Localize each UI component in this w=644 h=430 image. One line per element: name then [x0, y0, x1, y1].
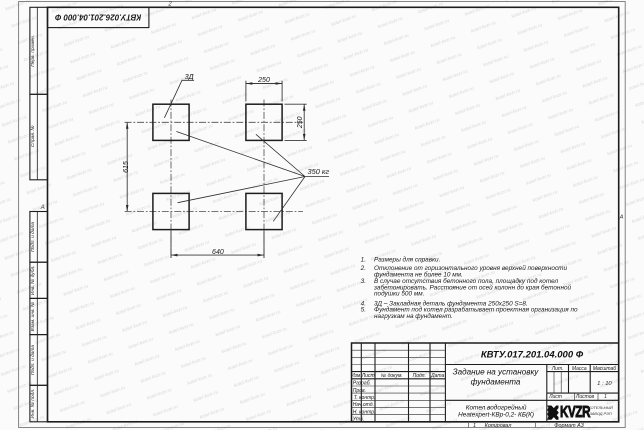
svg-text:350 кг: 350 кг	[308, 167, 330, 176]
svg-text:Т. контр.: Т. контр.	[354, 395, 376, 401]
svg-text:615: 615	[123, 161, 130, 173]
svg-text:1 : 10: 1 : 10	[597, 381, 612, 387]
svg-text:Справ. №: Справ. №	[30, 125, 36, 147]
svg-text:Изм.: Изм.	[351, 373, 362, 379]
svg-text:2.: 2.	[360, 265, 366, 272]
svg-text:Разраб.: Разраб.	[353, 381, 371, 387]
svg-text:ЗАВОД РЭП: ЗАВОД РЭП	[589, 411, 612, 416]
svg-text:3.: 3.	[361, 278, 366, 285]
svg-text:Листов: Листов	[575, 394, 595, 400]
svg-text:Размеры для справки.: Размеры для справки.	[374, 255, 440, 263]
svg-text:Инв. № дубл.: Инв. № дубл.	[30, 266, 36, 296]
svg-text:250: 250	[257, 77, 270, 84]
svg-text:Подп. и дата: Подп. и дата	[30, 345, 36, 375]
svg-text:КОТЕЛЬНЫЙ: КОТЕЛЬНЫЙ	[588, 405, 613, 410]
svg-text:2: 2	[167, 2, 172, 8]
svg-text:KVZR: KVZR	[560, 403, 591, 421]
svg-text:1: 1	[473, 423, 476, 429]
svg-text:Лист: Лист	[361, 373, 375, 379]
svg-text:Лит.: Лит.	[551, 366, 564, 372]
svg-text:Пров.: Пров.	[353, 388, 366, 394]
svg-text:Нач.отд.: Нач.отд.	[353, 402, 374, 408]
svg-text:Утв.: Утв.	[353, 416, 364, 422]
svg-text:640: 640	[212, 249, 224, 256]
svg-text:фундамента: фундамента	[471, 377, 521, 386]
svg-text:Взам. инв. №: Взам. инв. №	[30, 302, 36, 332]
svg-text:Подп. и дата: Подп. и дата	[30, 222, 36, 252]
svg-text:1.: 1.	[361, 256, 366, 263]
svg-text:КВТУ.026.201.04.000 Ф: КВТУ.026.201.04.000 Ф	[54, 13, 141, 22]
svg-text:КВТУ.017.201.04.000 Ф: КВТУ.017.201.04.000 Ф	[481, 349, 584, 360]
svg-text:Подп.: Подп.	[413, 373, 426, 379]
svg-text:Масштаб: Масштаб	[593, 366, 617, 372]
svg-text:3Д: 3Д	[185, 74, 194, 81]
svg-text:Задание на установку: Задание на установку	[453, 368, 540, 377]
svg-text:Масса: Масса	[572, 366, 587, 372]
svg-text:Копировал: Копировал	[485, 423, 512, 429]
svg-text:Н. контр.: Н. контр.	[353, 409, 376, 415]
svg-text:Перв. примен.: Перв. примен.	[30, 35, 36, 67]
svg-text:фундамента не более 10 мм.: фундамента не более 10 мм.	[374, 270, 463, 278]
svg-text:Дата: Дата	[430, 373, 444, 379]
svg-text:А: А	[619, 215, 624, 221]
svg-text:А: А	[40, 205, 45, 211]
svg-text:Лист: Лист	[548, 394, 562, 400]
svg-text:подушки 500 мм.: подушки 500 мм.	[374, 290, 424, 298]
svg-text:250: 250	[297, 116, 304, 129]
svg-text:нагрузкам на фундамент.: нагрузкам на фундамент.	[374, 312, 453, 320]
svg-text:№ докум.: № докум.	[381, 373, 403, 379]
svg-text:Формат А3: Формат А3	[554, 423, 584, 429]
svg-text:1: 1	[604, 394, 607, 400]
svg-text:Инв. № подл.: Инв. № подл.	[30, 389, 36, 419]
svg-text:5.: 5.	[361, 307, 366, 314]
svg-text:Котел водогрейный: Котел водогрейный	[466, 404, 527, 412]
svg-text:Heatexpert-КВр-0,2- КБ(К): Heatexpert-КВр-0,2- КБ(К)	[458, 411, 534, 418]
